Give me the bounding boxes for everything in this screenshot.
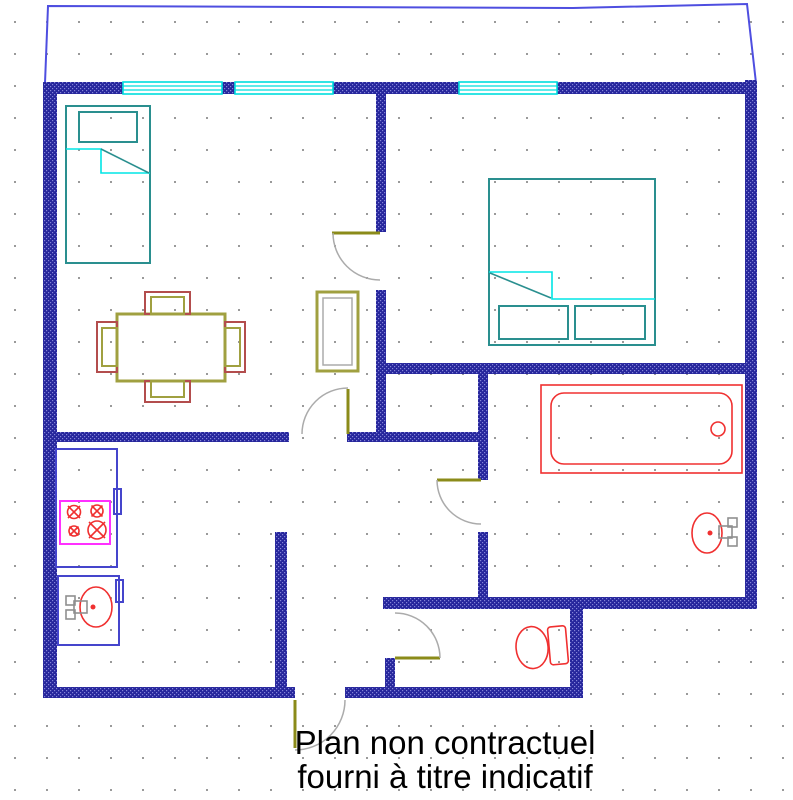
wall-top-pier — [222, 82, 235, 94]
wall-top-1 — [57, 82, 123, 94]
wall-bedroom-divider-upper — [376, 94, 386, 232]
caption-line-2: fourni à titre indicatif — [130, 760, 760, 794]
window-1 — [123, 82, 222, 94]
floor-plan-drawing — [0, 0, 793, 800]
caption: Plan non contractuel fourni à titre indi… — [130, 726, 760, 794]
wall-top-2 — [333, 82, 459, 94]
floor-plan: Plan non contractuel fourni à titre indi… — [0, 0, 793, 800]
window-2 — [235, 82, 333, 94]
wall-bedroom-bathroom — [386, 363, 757, 374]
wall-bathroom-left-lower — [478, 532, 488, 597]
wall-hall-top — [347, 432, 478, 442]
wall-left — [43, 82, 57, 698]
wall-wc-stub — [385, 658, 395, 687]
wall-bathroom-left-upper — [478, 374, 488, 480]
caption-line-1: Plan non contractuel — [130, 726, 760, 760]
wall-bottom-right — [345, 687, 583, 698]
wall-kitchen-top — [43, 432, 289, 442]
wall-bottom-left — [43, 687, 295, 698]
wall-wc-right — [570, 597, 583, 698]
grid-background — [0, 0, 793, 800]
wall-top-3 — [557, 82, 757, 94]
wall-bedroom-divider-lower — [376, 290, 386, 442]
window-3 — [459, 82, 557, 94]
wall-kitchen-right — [275, 532, 287, 687]
wall-right — [745, 80, 757, 609]
